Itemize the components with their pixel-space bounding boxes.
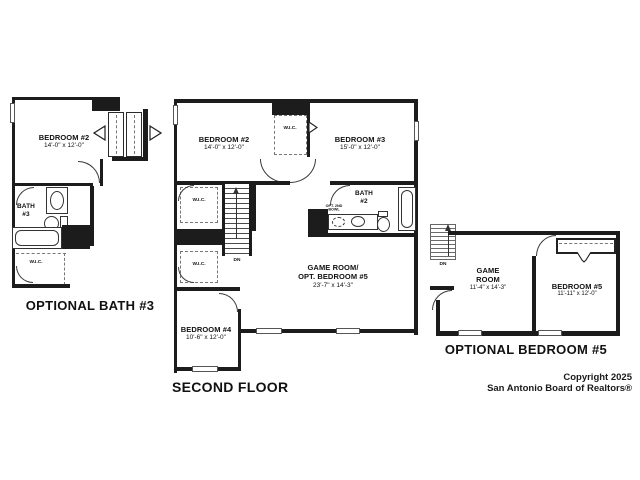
room-dims: 23'-7" x 14'-3" <box>272 282 394 290</box>
room-dims: 15'-0" x 12'-0" <box>318 144 402 152</box>
room-name: GAME <box>456 266 520 275</box>
plan-title: SECOND FLOOR <box>172 379 288 395</box>
room-name: #3 <box>10 211 42 219</box>
stair-arrow-head <box>445 224 451 231</box>
door-arc <box>432 290 452 310</box>
closet-dash <box>64 253 65 285</box>
bathtub-basin <box>401 190 413 228</box>
sink-bowl <box>50 191 64 210</box>
room-dims: 14'-0" x 12'-0" <box>184 144 264 152</box>
room-dims: 11'-11" x 12'-0" <box>538 291 616 299</box>
copyright-notice: Copyright 2025 San Antonio Board of Real… <box>368 372 632 395</box>
wall-segment <box>238 309 241 371</box>
wall-segment <box>616 231 620 336</box>
copyright-line1: Copyright 2025 <box>368 372 632 383</box>
floorplan-page: BEDROOM #2 14'-0" x 12'-0" BATH #3 W.I.C… <box>0 0 640 480</box>
room-name: BATH <box>342 190 386 198</box>
door-arc <box>290 159 316 183</box>
closet-dash <box>16 253 66 254</box>
window <box>10 103 15 123</box>
stair-arrow <box>236 193 237 239</box>
closet-wall-block <box>92 97 120 111</box>
door-arc <box>536 235 556 256</box>
window <box>538 330 562 336</box>
room-name: BEDROOM #2 <box>16 133 112 142</box>
room-name: BEDROOM #2 <box>184 135 264 144</box>
room-label-bath3: BATH #3 <box>10 203 42 219</box>
room-label-bedroom2: BEDROOM #2 14'-0" x 12'-0" <box>184 135 264 153</box>
window <box>173 105 178 125</box>
wall-segment <box>143 109 148 159</box>
wall-segment <box>308 233 414 237</box>
room-label-bedroom5: BEDROOM #5 11'-11" x 12'-0" <box>538 282 616 299</box>
room-name: #2 <box>342 198 386 206</box>
closet-shelf-dash <box>559 243 613 244</box>
room-name: BATH <box>10 203 42 211</box>
wall-segment <box>448 231 620 235</box>
staircase <box>222 184 252 256</box>
room-name: ROOM <box>456 275 520 284</box>
wall-block <box>174 229 222 245</box>
door-arc <box>16 266 33 283</box>
wall-block <box>62 225 90 249</box>
wall-segment <box>112 157 148 161</box>
plan-optional-bedroom-5: DN GAME ROOM 11'-4" x 14'-3" BEDROOM #5 … <box>428 222 640 367</box>
window <box>336 328 360 334</box>
closet-wall-block <box>272 99 310 115</box>
wall-segment <box>12 284 70 288</box>
plan-optional-bath-3: BEDROOM #2 14'-0" x 12'-0" BATH #3 W.I.C… <box>8 95 170 320</box>
room-name: BEDROOM #4 <box>174 325 238 334</box>
stair-arrow-head <box>233 187 239 194</box>
window <box>256 328 282 334</box>
window <box>192 366 218 372</box>
optional-sink-bowl <box>332 217 345 227</box>
window <box>414 121 419 141</box>
room-dims: 11'-4" x 14'-3" <box>456 285 520 293</box>
room-name: BEDROOM #5 <box>538 282 616 291</box>
room-label-gameroom: GAME ROOM/ OPT. BEDROOM #5 23'-7" x 14'-… <box>272 263 394 290</box>
sink-bowl <box>351 216 365 227</box>
closet-door-panel <box>126 112 142 157</box>
wall-segment <box>175 287 240 291</box>
closet-door-arrow-icon <box>149 125 162 141</box>
wall-segment <box>252 184 256 231</box>
copyright-line2: San Antonio Board of Realtors® <box>368 383 632 394</box>
wall-segment <box>12 251 15 288</box>
plan-title: OPTIONAL BATH #3 <box>10 298 170 313</box>
closet-door-arrow-icon <box>308 121 318 134</box>
dn-label: DN <box>225 258 249 263</box>
wall-segment <box>100 159 103 186</box>
bathtub-basin <box>15 230 59 246</box>
room-label-bedroom4: BEDROOM #4 10'-6" x 12'-0" <box>174 325 238 343</box>
room-dims: 10'-6" x 12'-0" <box>174 334 238 342</box>
wall-segment <box>532 256 536 332</box>
door-arc <box>219 293 238 312</box>
closet-door-dash <box>134 115 135 154</box>
room-label-bath2: BATH #2 <box>342 190 386 206</box>
plan-title: OPTIONAL BEDROOM #5 <box>428 342 624 357</box>
dn-label: DN <box>433 262 454 267</box>
wall-segment <box>90 186 94 246</box>
closet-door-dash <box>116 115 117 154</box>
room-label-bedroom2: BEDROOM #2 14'-0" x 12'-0" <box>16 133 112 151</box>
room-name: BEDROOM #3 <box>318 135 402 144</box>
room-label-gameroom: GAME ROOM 11'-4" x 14'-3" <box>456 266 520 293</box>
toilet-bowl <box>377 217 390 232</box>
wall-segment <box>436 300 440 333</box>
wall-segment <box>330 181 414 185</box>
room-label-bedroom3: BEDROOM #3 15'-0" x 12'-0" <box>318 135 402 153</box>
room-dims: 14'-0" x 12'-0" <box>16 142 112 150</box>
wic-label: W.I.C. <box>20 260 52 265</box>
staircase <box>430 224 456 260</box>
closet-door-notch-icon <box>576 252 592 263</box>
room-name: OPT. BEDROOM #5 <box>272 272 394 281</box>
door-arc <box>260 159 286 183</box>
wic-label: W.I.C. <box>279 126 301 131</box>
window <box>458 330 482 336</box>
wall-segment <box>12 183 93 186</box>
wic-closet <box>274 115 307 155</box>
door-arc <box>78 161 100 183</box>
room-name: GAME ROOM/ <box>272 263 394 272</box>
plan-second-floor: W.I.C. BEDROOM #2 14'-0" x 12'-0" BEDROO… <box>172 95 428 397</box>
wall-block <box>308 209 328 233</box>
